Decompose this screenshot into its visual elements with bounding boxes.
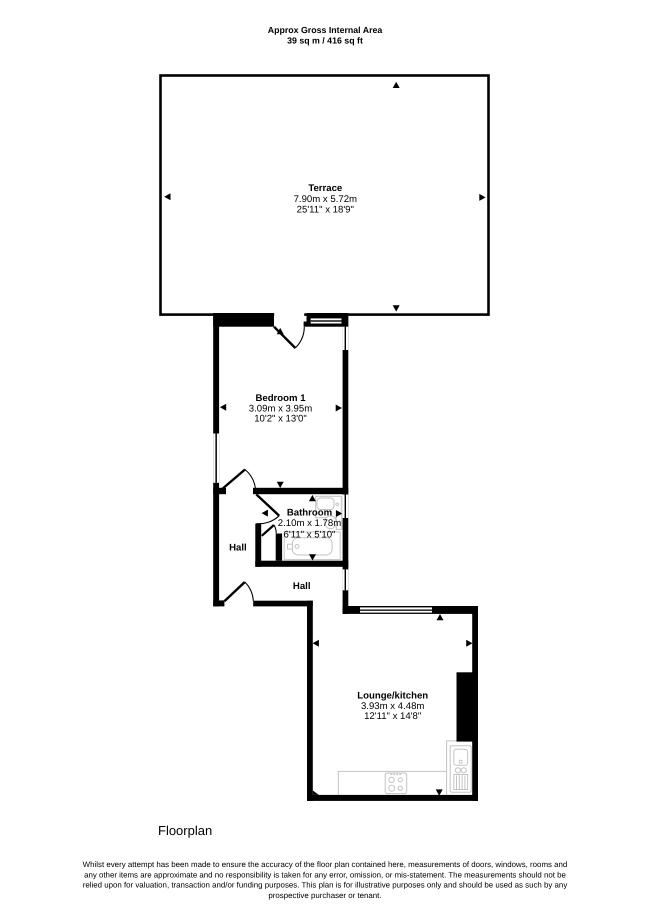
svg-text:prospective purchaser or tenan: prospective purchaser or tenant.	[268, 891, 381, 900]
svg-text:Whilst every attempt has been: Whilst every attempt has been made to en…	[83, 860, 568, 869]
svg-text:Floorplan: Floorplan	[158, 823, 212, 838]
svg-text:any other items are approximat: any other items are approximate and no r…	[84, 870, 566, 879]
svg-text:2.10m x 1.78m: 2.10m x 1.78m	[278, 518, 341, 529]
svg-text:relied upon for valuation, tra: relied upon for valuation, transaction a…	[83, 881, 568, 890]
svg-text:25'11" x 18'9": 25'11" x 18'9"	[297, 205, 354, 216]
svg-text:Hall: Hall	[229, 542, 247, 553]
svg-text:Bathroom: Bathroom	[287, 507, 332, 518]
svg-text:7.90m x 5.72m: 7.90m x 5.72m	[294, 194, 357, 205]
svg-text:Bedroom 1: Bedroom 1	[255, 393, 306, 404]
svg-text:Lounge/kitchen: Lounge/kitchen	[357, 691, 428, 702]
svg-text:Hall: Hall	[293, 581, 311, 592]
svg-text:6'11" x 5'10": 6'11" x 5'10"	[284, 529, 336, 540]
svg-text:Approx Gross Internal Area: Approx Gross Internal Area	[268, 25, 383, 35]
svg-text:10'2" x 13'0": 10'2" x 13'0"	[254, 414, 307, 425]
svg-text:Terrace: Terrace	[308, 183, 342, 194]
svg-text:39 sq m / 416 sq ft: 39 sq m / 416 sq ft	[287, 35, 363, 45]
svg-text:12'11" x 14'8": 12'11" x 14'8"	[364, 711, 421, 722]
